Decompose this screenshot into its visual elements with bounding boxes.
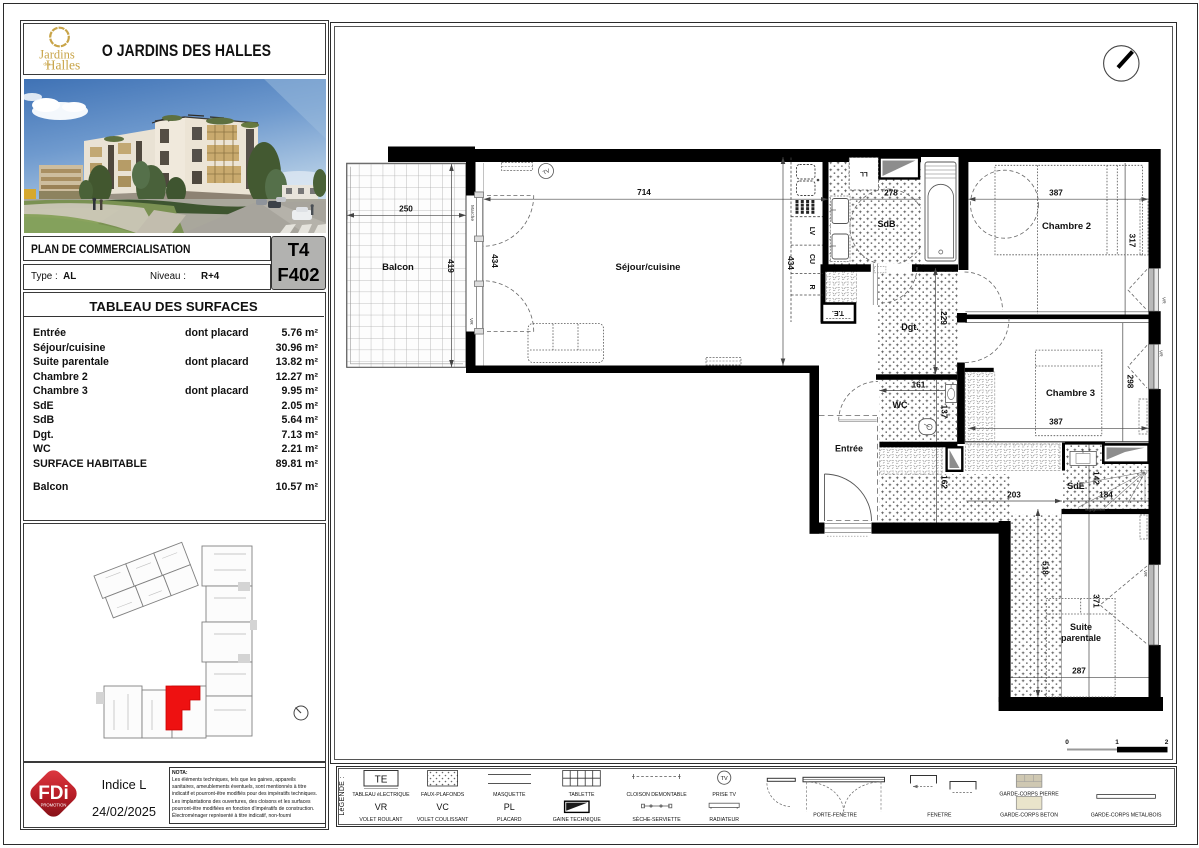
svg-text:PORTE-FENETRE: PORTE-FENETRE (813, 813, 857, 819)
svg-text:Dgt.: Dgt. (901, 322, 919, 332)
svg-text:TABLETTE: TABLETTE (569, 792, 595, 798)
svg-text:VR: VR (1158, 350, 1164, 357)
svg-text:VR: VR (375, 802, 388, 812)
svg-text:VC: VC (436, 802, 449, 812)
svg-text:Balcon: Balcon (382, 262, 414, 273)
svg-text:Marche: Marche (469, 205, 475, 221)
svg-text:137: 137 (940, 405, 949, 419)
svg-text:518: 518 (1041, 561, 1050, 575)
svg-text:434: 434 (490, 254, 499, 268)
svg-text:CU: CU (808, 254, 815, 264)
svg-text:LéGENDE :: LéGENDE : (339, 776, 346, 815)
svg-text:LL: LL (860, 170, 868, 177)
svg-text:parentale: parentale (1061, 633, 1101, 643)
svg-text:FAUX-PLAFONDS: FAUX-PLAFONDS (421, 792, 465, 798)
svg-text:GARDE-CORPS BETON: GARDE-CORPS BETON (1000, 813, 1058, 819)
svg-text:SÈCHE-SERVIETTE: SÈCHE-SERVIETTE (632, 816, 681, 823)
svg-text:161: 161 (912, 381, 926, 390)
svg-text:419: 419 (446, 259, 455, 273)
svg-text:PL: PL (504, 802, 515, 812)
svg-text:dégagement: dégagement (1085, 508, 1105, 512)
svg-text:PRISE TV: PRISE TV (712, 792, 736, 798)
svg-text:FENETRE: FENETRE (927, 813, 952, 819)
svg-text:Chambre 3: Chambre 3 (1046, 388, 1095, 399)
svg-text:1: 1 (1115, 739, 1119, 746)
svg-text:LV: LV (808, 227, 815, 236)
svg-text:229: 229 (939, 311, 948, 325)
svg-text:298: 298 (1125, 375, 1134, 389)
svg-text:VR: VR (1161, 297, 1167, 304)
svg-text:TV: TV (721, 776, 728, 782)
svg-text:0: 0 (1065, 739, 1069, 746)
svg-text:TE: TE (375, 775, 388, 786)
svg-text:SdB: SdB (878, 219, 897, 229)
svg-text:VR: VR (1142, 570, 1148, 577)
svg-text:TV: TV (542, 168, 551, 177)
svg-text:T.E.: T.E. (832, 309, 844, 316)
svg-text:142: 142 (1092, 471, 1101, 485)
svg-text:CLOISON DEMONTABLE: CLOISON DEMONTABLE (627, 792, 688, 798)
svg-text:PLACARD: PLACARD (497, 817, 522, 823)
svg-text:WC: WC (893, 400, 908, 410)
svg-text:387: 387 (1049, 189, 1063, 198)
svg-text:GAINE TECHNIQUE: GAINE TECHNIQUE (553, 817, 602, 823)
svg-text:VOLET ROULANT: VOLET ROULANT (359, 817, 403, 823)
svg-text:434: 434 (786, 256, 795, 270)
svg-text:162: 162 (940, 475, 949, 489)
svg-text:Entrée: Entrée (835, 444, 863, 454)
svg-text:2: 2 (1165, 739, 1169, 746)
svg-text:VR: VR (468, 318, 474, 325)
svg-text:Chambre 2: Chambre 2 (1042, 221, 1091, 232)
svg-text:287: 287 (1072, 667, 1086, 676)
svg-text:387: 387 (1049, 418, 1063, 427)
svg-text:317: 317 (1128, 234, 1137, 248)
svg-text:203: 203 (1007, 491, 1021, 500)
svg-text:MASQUETTE: MASQUETTE (493, 792, 526, 798)
svg-text:714: 714 (637, 188, 651, 197)
svg-text:R: R (808, 284, 815, 289)
svg-text:GARDE-CORPS METAL/BOIS: GARDE-CORPS METAL/BOIS (1091, 813, 1162, 819)
svg-text:TABLEAU éLECTRIQUE: TABLEAU éLECTRIQUE (352, 792, 410, 798)
svg-text:VOLET COULISSANT: VOLET COULISSANT (417, 817, 469, 823)
svg-text:RADIATEUR: RADIATEUR (709, 817, 739, 823)
svg-text:SdE: SdE (1067, 481, 1085, 491)
svg-text:250: 250 (399, 205, 413, 214)
svg-text:371: 371 (1092, 594, 1101, 608)
svg-text:Séjour/cuisine: Séjour/cuisine (616, 262, 681, 273)
